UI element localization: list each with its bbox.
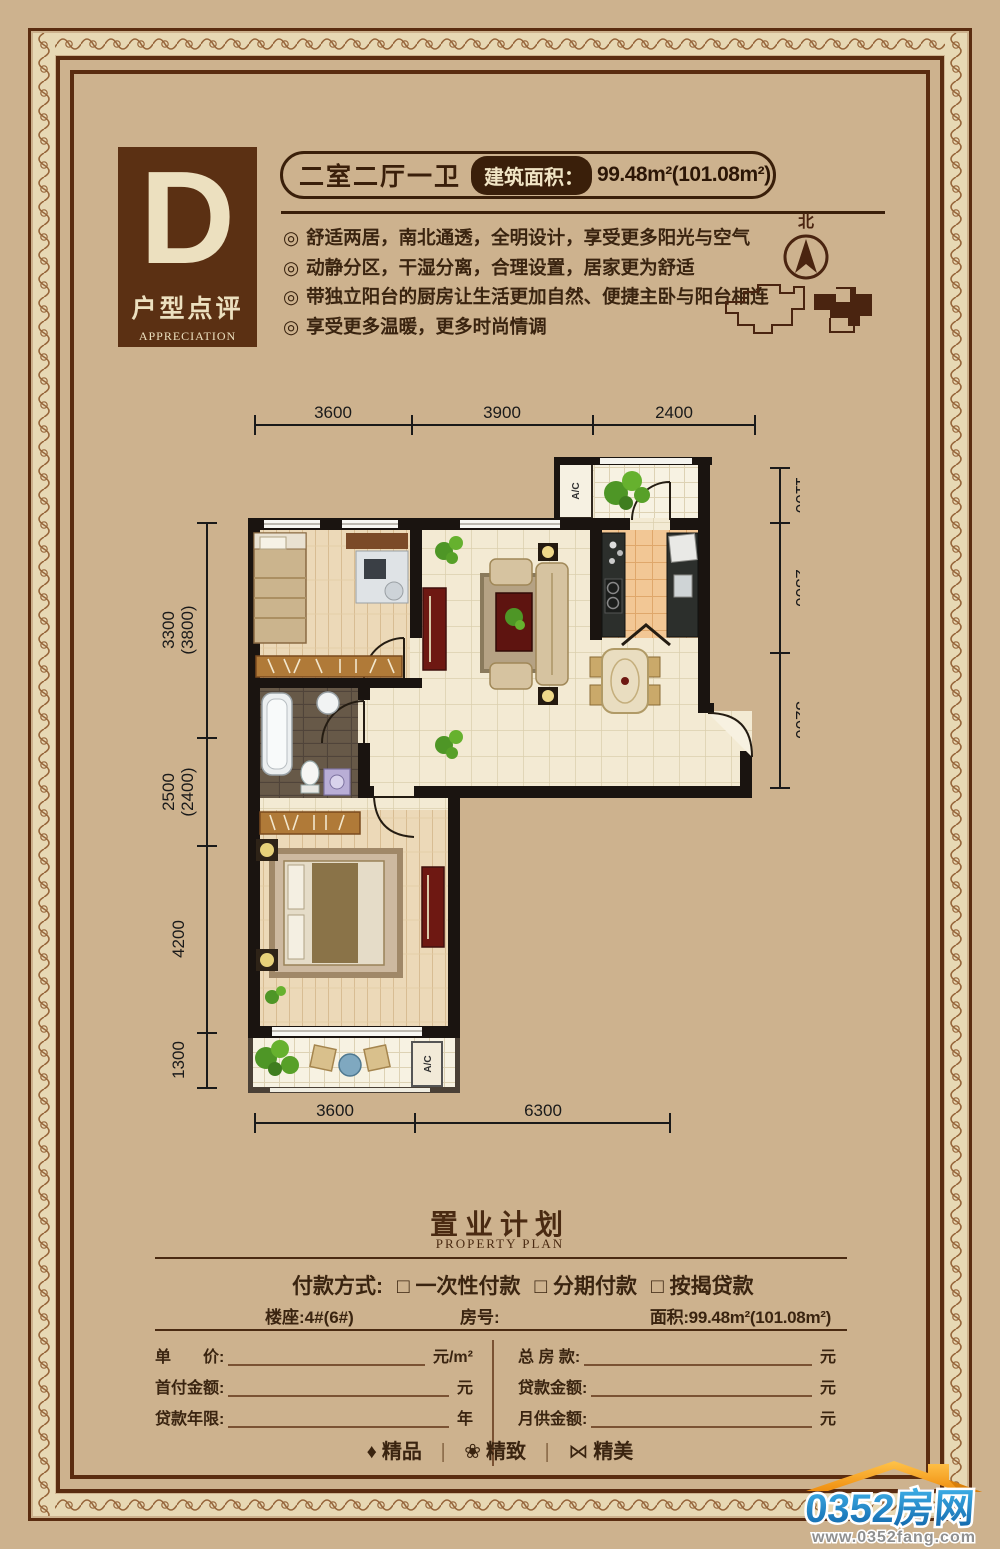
dim-left-1-alt: (3800) bbox=[178, 605, 197, 654]
layout-area-pill: 二室二厅一卫 建筑面积： 99.48m²(101.08m²) bbox=[280, 151, 776, 199]
dim-right-1: 1100 bbox=[792, 477, 800, 514]
form-row-downpayment: 首付金额: 元 bbox=[155, 1367, 473, 1398]
dim-bottom-1: 3600 bbox=[316, 1101, 354, 1120]
field-unit: 元 bbox=[820, 1374, 836, 1398]
unit-label: 户型点评 bbox=[118, 289, 257, 325]
badge-text: 精美 bbox=[593, 1441, 633, 1463]
unit-area: 面积:99.48m²(101.08m²) bbox=[625, 1303, 831, 1328]
bullet-icon: ◎ bbox=[283, 286, 299, 307]
field-label: 总 房 款: bbox=[518, 1343, 580, 1367]
badge-divider: | bbox=[440, 1441, 445, 1463]
field-unit: 元 bbox=[820, 1343, 836, 1367]
feature-item: ◎舒适两居，南北通透，全明设计，享受更多阳光与空气 bbox=[283, 223, 788, 253]
total-price-blank-field[interactable] bbox=[584, 1342, 812, 1366]
dim-left-2: 2500 bbox=[160, 773, 178, 811]
loan-amount-blank-field[interactable] bbox=[591, 1373, 812, 1397]
ac-unit-label: A/C bbox=[571, 482, 582, 499]
room-number: 房号: bbox=[460, 1303, 625, 1328]
form-row-unit-price: 单 价: 元/m² bbox=[155, 1336, 473, 1367]
dim-left-1: 3300 bbox=[160, 611, 178, 649]
badge-text: 精致 bbox=[486, 1441, 526, 1463]
unit-price-blank-field[interactable] bbox=[228, 1342, 425, 1366]
layout-text: 二室二厅一卫 bbox=[299, 157, 461, 193]
dim-right-3: 3200 bbox=[792, 701, 800, 739]
feature-item: ◎带独立阳台的厨房让生活更加自然、便捷主卧与阳台相连 bbox=[283, 282, 788, 312]
field-unit: 元 bbox=[820, 1405, 836, 1429]
logo-name: 0352房网 bbox=[804, 1487, 976, 1531]
field-label: 单 价: bbox=[155, 1343, 224, 1367]
field-unit: 元 bbox=[457, 1374, 473, 1398]
form-column-right: 总 房 款: 元 贷款金额: 元 月供金额: 元 bbox=[518, 1336, 836, 1429]
feature-list: ◎舒适两居，南北通透，全明设计，享受更多阳光与空气 ◎动静分区，干湿分离，合理设… bbox=[283, 223, 788, 341]
downpayment-blank-field[interactable] bbox=[228, 1373, 449, 1397]
north-arrow-icon bbox=[785, 236, 827, 278]
badge-divider: | bbox=[545, 1441, 550, 1463]
payment-label: 付款方式: bbox=[292, 1275, 383, 1298]
bullet-icon: ◎ bbox=[283, 316, 299, 337]
payment-option-checkbox[interactable]: □ 分期付款 bbox=[535, 1275, 638, 1298]
frame-ornate-band-right bbox=[945, 33, 967, 1516]
field-label: 贷款年限: bbox=[155, 1405, 224, 1429]
property-plan-subtitle: PROPERTY PLAN bbox=[0, 1236, 1000, 1252]
section-divider-line bbox=[155, 1257, 847, 1259]
dim-top-1: 3600 bbox=[314, 403, 352, 422]
form-row-total-price: 总 房 款: 元 bbox=[518, 1336, 836, 1367]
dim-left-3: 4200 bbox=[169, 920, 188, 958]
feature-item: ◎享受更多温暖，更多时尚情调 bbox=[283, 312, 788, 342]
feature-text: 动静分区，干湿分离，合理设置，居家更为舒适 bbox=[306, 257, 695, 278]
bullet-icon: ◎ bbox=[283, 227, 299, 248]
unit-label-en: APPRECIATION bbox=[118, 329, 257, 344]
unit-letter: D bbox=[118, 149, 257, 287]
dim-right-2: 2300 bbox=[792, 569, 800, 607]
ac-unit-label: A/C bbox=[423, 1055, 434, 1072]
gem-icon: ♦ bbox=[367, 1441, 377, 1463]
field-unit: 元/m² bbox=[433, 1343, 473, 1367]
site-plan-buildings bbox=[726, 285, 872, 333]
form-column-left: 单 价: 元/m² 首付金额: 元 贷款年限: 年 bbox=[155, 1336, 473, 1429]
feature-text: 带独立阳台的厨房让生活更加自然、便捷主卧与阳台相连 bbox=[306, 286, 769, 307]
dim-top-3: 2400 bbox=[655, 403, 693, 422]
dim-top-2: 3900 bbox=[483, 403, 521, 422]
form-row-loan-term: 贷款年限: 年 bbox=[155, 1398, 473, 1429]
bowtie-icon: ⋈ bbox=[568, 1441, 588, 1463]
feature-item: ◎动静分区，干湿分离，合理设置，居家更为舒适 bbox=[283, 253, 788, 283]
field-label: 贷款金额: bbox=[518, 1374, 587, 1398]
frame-ornate-band-left bbox=[33, 33, 55, 1516]
floor-plan: A/C bbox=[160, 393, 800, 1143]
site-logo[interactable]: 0352房网 www.0352fang.com bbox=[792, 1449, 996, 1547]
bullet-icon: ◎ bbox=[283, 257, 299, 278]
dim-left-4: 1300 bbox=[169, 1041, 188, 1079]
area-value: 99.48m²(101.08m²) bbox=[597, 163, 771, 187]
section-divider-line-2 bbox=[155, 1329, 847, 1331]
dim-bottom-2: 6300 bbox=[524, 1101, 562, 1120]
payment-option-checkbox[interactable]: □ 一次性付款 bbox=[397, 1275, 521, 1298]
field-label: 月供金额: bbox=[518, 1405, 587, 1429]
badge-text: 精品 bbox=[382, 1441, 422, 1463]
field-unit: 年 bbox=[457, 1405, 473, 1429]
compass-siteplan: 北 bbox=[718, 210, 898, 350]
area-label-tag: 建筑面积： bbox=[471, 156, 592, 195]
feature-text: 舒适两居，南北通透，全明设计，享受更多阳光与空气 bbox=[306, 227, 750, 248]
form-row-loan-amount: 贷款金额: 元 bbox=[518, 1367, 836, 1398]
unit-type-box: D 户型点评 APPRECIATION bbox=[118, 147, 257, 347]
frame-ornate-band-top bbox=[33, 33, 967, 55]
loan-term-blank-field[interactable] bbox=[228, 1404, 449, 1428]
field-label: 首付金额: bbox=[155, 1374, 224, 1398]
feature-text: 享受更多温暖，更多时尚情调 bbox=[306, 316, 547, 337]
payment-method-row: 付款方式:□ 一次性付款□ 分期付款□ 按揭贷款 bbox=[292, 1270, 754, 1300]
payment-option-checkbox[interactable]: □ 按揭贷款 bbox=[651, 1275, 754, 1298]
logo-url: www.0352fang.com bbox=[811, 1529, 976, 1546]
medallion-icon: ❀ bbox=[464, 1441, 481, 1463]
unit-info-row: 楼座:4#(6#) 房号: 面积:99.48m²(101.08m²) bbox=[265, 1303, 831, 1328]
building-number: 楼座:4#(6#) bbox=[265, 1303, 460, 1328]
north-label: 北 bbox=[798, 213, 814, 231]
monthly-payment-blank-field[interactable] bbox=[591, 1404, 812, 1428]
form-row-monthly-payment: 月供金额: 元 bbox=[518, 1398, 836, 1429]
dim-left-2-alt: (2400) bbox=[178, 767, 197, 816]
